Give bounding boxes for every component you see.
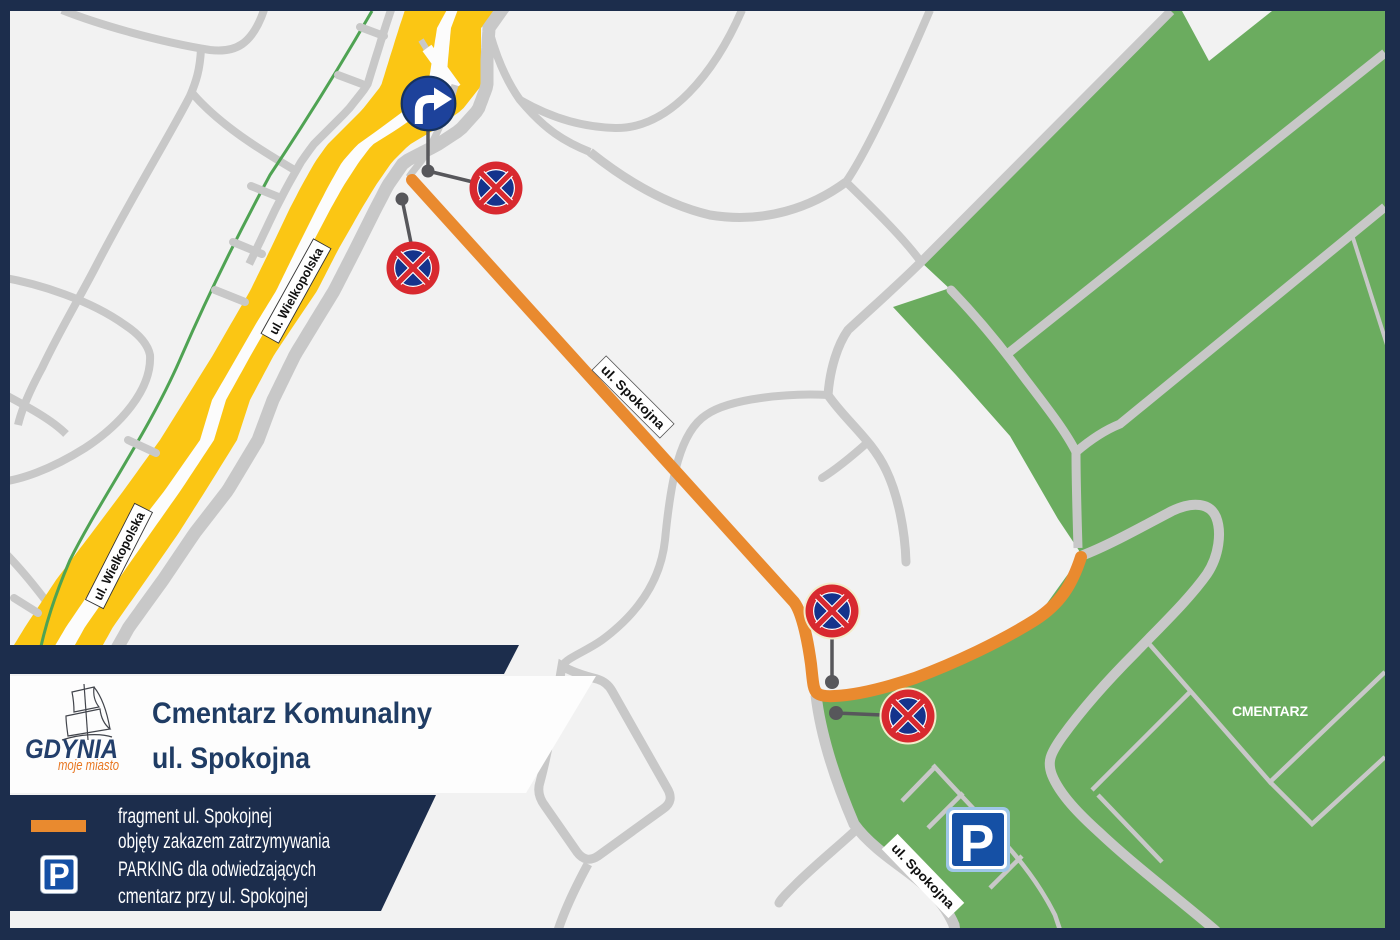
svg-text:moje miasto: moje miasto [58, 757, 119, 774]
svg-text:CMENTARZ: CMENTARZ [1232, 703, 1308, 719]
svg-text:P: P [48, 857, 69, 893]
svg-text:P: P [960, 815, 995, 873]
svg-text:objęty zakazem zatrzymywania: objęty zakazem zatrzymywania [118, 830, 330, 853]
svg-text:PARKING dla odwiedzających: PARKING dla odwiedzających [118, 858, 316, 881]
svg-text:fragment ul. Spokojnej: fragment ul. Spokojnej [118, 805, 272, 828]
svg-text:cmentarz przy ul. Spokojnej: cmentarz przy ul. Spokojnej [118, 885, 308, 908]
svg-text:Cmentarz Komunalny: Cmentarz Komunalny [152, 697, 432, 730]
svg-text:ul. Spokojna: ul. Spokojna [152, 742, 310, 775]
